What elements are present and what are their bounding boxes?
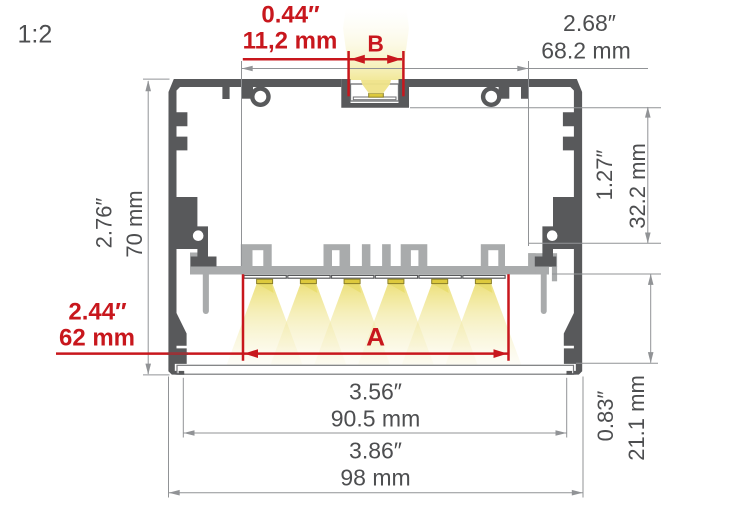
svg-text:A: A [366,324,385,352]
svg-text:21.1 mm: 21.1 mm [624,375,649,461]
svg-text:90.5 mm: 90.5 mm [331,406,420,432]
svg-text:98 mm: 98 mm [340,465,410,491]
svg-text:62 mm: 62 mm [59,325,135,352]
svg-text:1.27″: 1.27″ [592,149,617,200]
svg-text:32.2 mm: 32.2 mm [625,143,650,229]
svg-text:0.83″: 0.83″ [593,390,618,441]
svg-text:2.68″: 2.68″ [563,10,616,36]
svg-text:3.86″: 3.86″ [349,438,402,464]
svg-text:2.44″: 2.44″ [68,299,127,326]
svg-text:B: B [367,31,384,57]
svg-text:70 mm: 70 mm [122,190,147,257]
svg-text:1:2: 1:2 [18,21,53,49]
svg-text:3.56″: 3.56″ [349,379,402,405]
svg-text:68.2 mm: 68.2 mm [541,38,630,64]
svg-text:11,2 mm: 11,2 mm [243,28,338,55]
svg-text:0.44″: 0.44″ [261,2,320,29]
svg-text:2.76″: 2.76″ [92,197,117,248]
